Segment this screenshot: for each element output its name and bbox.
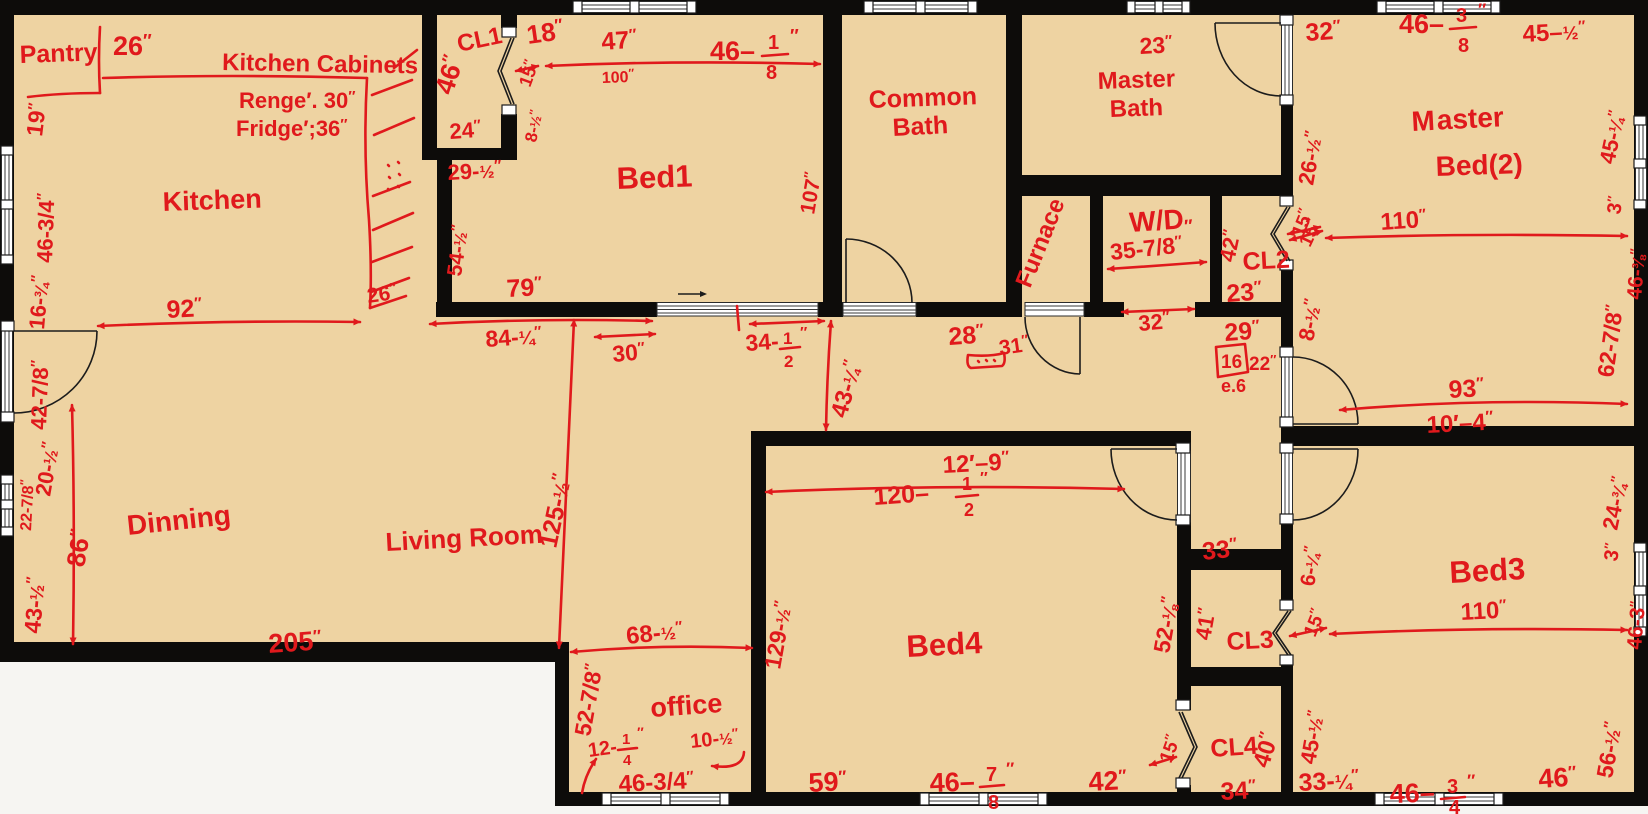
- svg-text:84-¼′′: 84-¼′′: [485, 322, 543, 352]
- svg-text:8: 8: [1458, 35, 1469, 57]
- svg-text:CL2: CL2: [1242, 246, 1291, 276]
- svg-text:Master: Master: [1097, 65, 1175, 95]
- svg-text:12′–9′′: 12′–9′′: [942, 449, 1010, 479]
- svg-text:Common: Common: [868, 82, 977, 114]
- svg-text:46–: 46–: [1389, 777, 1435, 809]
- svg-text:′′: ′′: [1478, 0, 1486, 19]
- svg-text:Bed1: Bed1: [616, 158, 693, 196]
- svg-text:29-½′′: 29-½′′: [447, 157, 503, 185]
- svg-text:e.6: e.6: [1221, 376, 1246, 396]
- svg-text:′′: ′′: [1006, 759, 1014, 778]
- svg-text:1: 1: [783, 329, 792, 348]
- svg-text:120–: 120–: [872, 479, 930, 511]
- svg-text:Bed3: Bed3: [1449, 551, 1527, 590]
- svg-text:33-¼′′: 33-¼′′: [1298, 766, 1360, 797]
- svg-text:1: 1: [962, 474, 972, 494]
- svg-text:46-3/4′′: 46-3/4′′: [32, 192, 59, 263]
- svg-text:4: 4: [1449, 797, 1461, 814]
- svg-text:CL3: CL3: [1226, 626, 1275, 656]
- svg-text:′′: ′′: [1467, 771, 1475, 790]
- svg-text:′′: ′′: [637, 724, 644, 740]
- svg-text:Bath: Bath: [892, 111, 949, 142]
- svg-text:34-: 34-: [745, 328, 780, 356]
- svg-text:8: 8: [988, 792, 999, 814]
- svg-text:Bed4: Bed4: [906, 625, 984, 664]
- svg-text:2: 2: [784, 352, 793, 371]
- svg-text:Bath: Bath: [1109, 94, 1163, 123]
- svg-text:Kitchen: Kitchen: [162, 184, 262, 217]
- svg-text:46-3/4′′: 46-3/4′′: [618, 767, 695, 798]
- svg-text:Pantry: Pantry: [19, 38, 98, 69]
- svg-text:′′: ′′: [980, 470, 988, 487]
- svg-text:office: office: [649, 688, 723, 723]
- svg-text:46–: 46–: [929, 766, 975, 798]
- svg-text:′′: ′′: [800, 324, 808, 341]
- svg-text:3: 3: [1456, 5, 1467, 27]
- svg-text:46–: 46–: [1399, 9, 1444, 39]
- svg-text:Fridge′;36′′: Fridge′;36′′: [236, 116, 348, 141]
- svg-text:10′–4′′: 10′–4′′: [1426, 409, 1494, 439]
- svg-text:205′′: 205′′: [267, 625, 322, 659]
- svg-text:3: 3: [1447, 776, 1458, 798]
- svg-text:Master: Master: [1411, 101, 1505, 137]
- svg-text:2: 2: [964, 500, 974, 520]
- svg-text:1: 1: [622, 731, 630, 748]
- svg-text:42-7/8′′: 42-7/8′′: [26, 359, 53, 430]
- svg-text:45–½′′: 45–½′′: [1522, 18, 1587, 48]
- svg-text:4: 4: [623, 752, 632, 769]
- svg-text:12-: 12-: [587, 736, 619, 762]
- svg-text:16: 16: [1221, 352, 1242, 373]
- svg-text:7: 7: [986, 764, 997, 786]
- svg-text:8: 8: [766, 62, 777, 84]
- svg-text:′′: ′′: [790, 26, 799, 46]
- svg-text:Bed(2): Bed(2): [1435, 148, 1523, 182]
- svg-text:Renge′. 30′′: Renge′. 30′′: [239, 88, 356, 113]
- svg-text:1: 1: [768, 32, 779, 54]
